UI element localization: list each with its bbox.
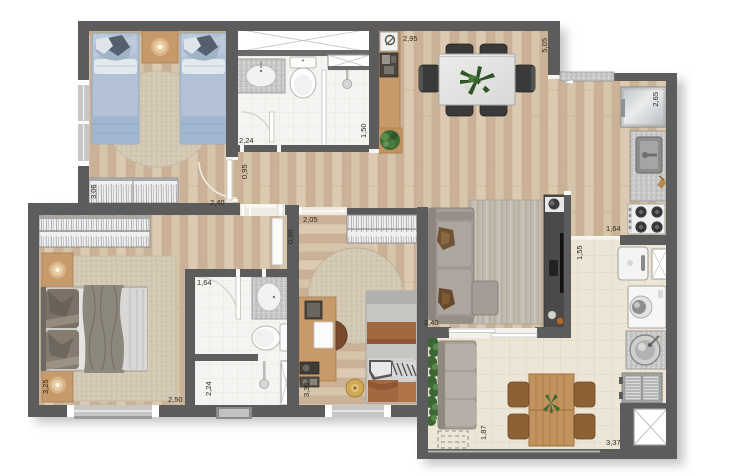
- svg-text:0,95: 0,95: [240, 164, 249, 179]
- svg-text:2,24: 2,24: [204, 381, 213, 396]
- svg-text:3,06: 3,06: [89, 184, 98, 199]
- svg-text:2,95: 2,95: [403, 34, 418, 43]
- svg-text:3,25: 3,25: [41, 379, 50, 394]
- svg-text:2,50: 2,50: [168, 395, 183, 404]
- svg-text:2,05: 2,05: [303, 215, 318, 224]
- svg-text:3,37: 3,37: [606, 438, 621, 447]
- svg-text:5,05: 5,05: [540, 38, 549, 53]
- svg-text:2,40: 2,40: [424, 318, 439, 327]
- svg-text:1,55: 1,55: [575, 245, 584, 260]
- svg-text:1,64: 1,64: [197, 278, 212, 287]
- svg-text:2,24: 2,24: [239, 136, 254, 145]
- svg-text:0,90: 0,90: [286, 229, 295, 244]
- svg-text:2,40: 2,40: [210, 198, 225, 207]
- svg-text:1,50: 1,50: [359, 123, 368, 138]
- svg-text:2,65: 2,65: [651, 92, 660, 107]
- svg-text:1,87: 1,87: [479, 425, 488, 440]
- svg-text:3,30: 3,30: [302, 382, 311, 397]
- svg-text:1,64: 1,64: [606, 224, 621, 233]
